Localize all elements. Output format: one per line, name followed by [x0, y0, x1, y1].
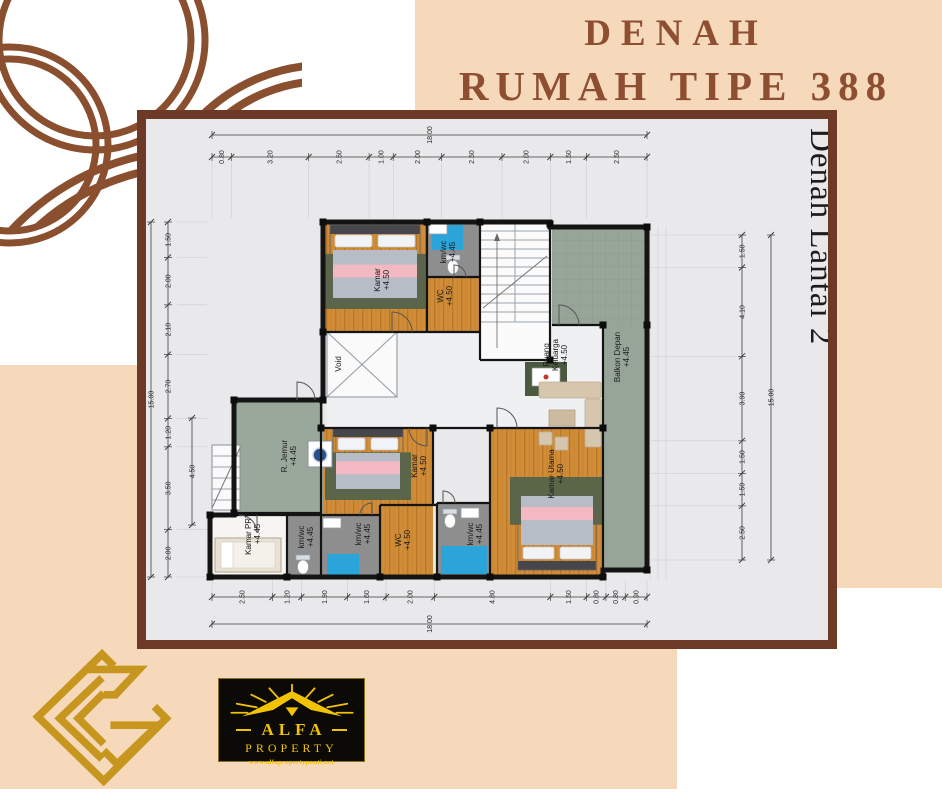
balcony-top-floor — [552, 227, 647, 325]
dim-label: 18.00 — [427, 126, 434, 144]
dim-label: 1.50 — [566, 150, 573, 164]
dim-label: 1.50 — [739, 483, 746, 497]
dim-label: 2.50 — [336, 150, 343, 164]
alfa-dash-left — [236, 729, 251, 731]
dim-label: 2.50 — [739, 526, 746, 540]
room-label: Void — [334, 356, 343, 372]
dim-label: 4.50 — [189, 465, 196, 479]
dim-label: 1.00 — [379, 150, 386, 164]
alfa-roof-icon — [219, 682, 365, 720]
dim-label: 18.00 — [427, 615, 434, 633]
dim-label: 1.20 — [165, 426, 172, 440]
dim-label: 1.50 — [566, 590, 573, 604]
dim-label: 1.50 — [165, 233, 172, 247]
dim-label: 2.10 — [165, 323, 172, 337]
alfa-brand: ALFA — [256, 720, 326, 740]
dim-label: 1.50 — [739, 450, 746, 464]
dim-label: 2.00 — [165, 546, 172, 560]
floorplan-card: 0.803.202.501.002.002.502.001.502.5018.0… — [137, 110, 837, 649]
dim-label: 1.20 — [284, 590, 291, 604]
dim-label: 4.10 — [739, 305, 746, 319]
dim-label: 2.00 — [524, 150, 531, 164]
room-label: Kamar+4.50 — [373, 268, 391, 292]
dim-label: 3.90 — [739, 392, 746, 406]
room-label: Kamar+4.50 — [410, 454, 428, 478]
poster-title: DENAH RUMAH TIPE 388 — [420, 12, 932, 110]
g-logo — [26, 644, 178, 792]
dim-label: 2.00 — [408, 590, 415, 604]
dim-label: 0.80 — [219, 150, 226, 164]
dim-label: 0.80 — [613, 590, 620, 604]
dim-label: 4.80 — [490, 590, 497, 604]
dim-label: 2.50 — [614, 150, 621, 164]
dim-label: 0.90 — [634, 590, 641, 604]
dim-label: 2.50 — [240, 590, 247, 604]
dim-label: 15.00 — [148, 391, 155, 409]
sink-icon — [323, 518, 341, 528]
alfa-dash-right — [332, 729, 347, 731]
dim-label: 3.20 — [267, 150, 274, 164]
dim-label: 15.00 — [768, 389, 775, 407]
floorplan-svg: 0.803.202.501.002.002.502.001.502.5018.0… — [137, 110, 837, 649]
title-line-1: DENAH — [420, 12, 932, 55]
alfa-logo: ALFA PROPERTY www.alfapropertyponti.net — [218, 678, 365, 762]
dim-label: 1.50 — [739, 244, 746, 258]
sink-icon — [429, 224, 447, 234]
dim-label: 2.00 — [165, 274, 172, 288]
room-label: km/wc+4.45 — [297, 526, 315, 549]
sink-icon — [461, 508, 479, 518]
poster: { "title": {"line1": "DENAH", "line2": "… — [0, 0, 942, 789]
dim-label: 1.90 — [322, 590, 329, 604]
dim-label: 1.60 — [364, 590, 371, 604]
dim-label: 2.70 — [165, 380, 172, 394]
room-label: km/wc+4.45 — [354, 523, 372, 546]
alfa-subtitle: PROPERTY — [219, 741, 364, 756]
room-label: km/wc+4.45 — [466, 523, 484, 546]
dim-label: 0.80 — [594, 590, 601, 604]
dim-label: 2.00 — [415, 150, 422, 164]
alfa-website: www.alfapropertyponti.net — [219, 759, 364, 766]
dim-label: 2.50 — [469, 150, 476, 164]
room-label: km/wc+4.45 — [439, 241, 457, 264]
title-line-2: RUMAH TIPE 388 — [420, 62, 932, 110]
dim-label: 3.50 — [165, 481, 172, 495]
